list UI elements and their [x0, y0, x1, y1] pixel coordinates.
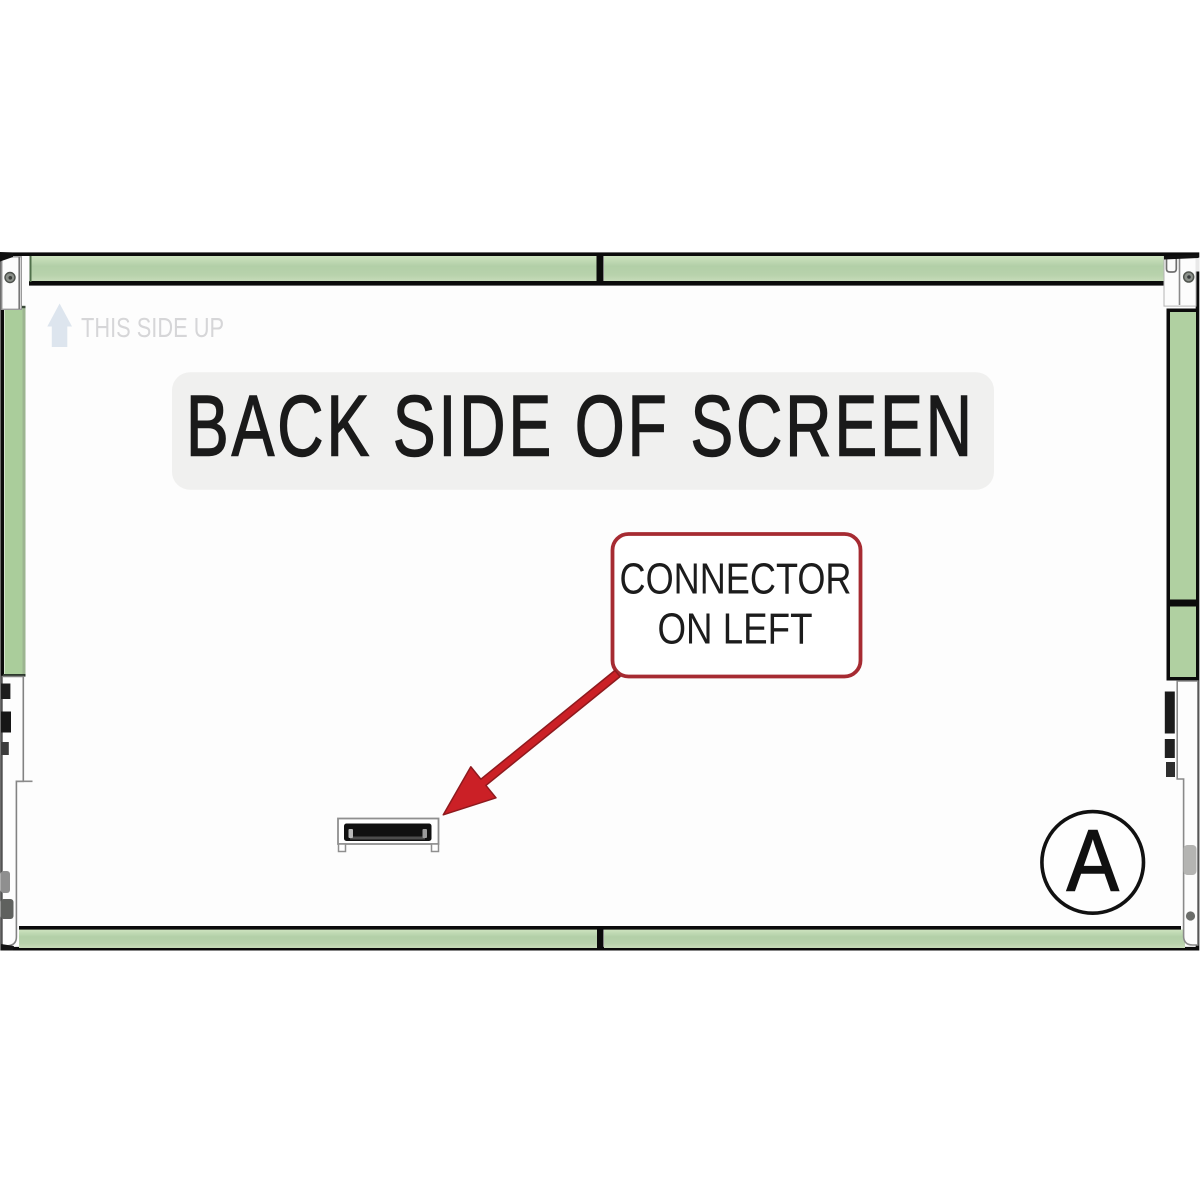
- svg-text:ON LEFT: ON LEFT: [658, 604, 813, 653]
- svg-text:BACK SIDE OF SCREEN: BACK SIDE OF SCREEN: [186, 378, 975, 474]
- svg-text:A: A: [1067, 813, 1119, 910]
- svg-text:THIS SIDE UP: THIS SIDE UP: [81, 312, 224, 343]
- svg-text:CONNECTOR: CONNECTOR: [620, 554, 852, 603]
